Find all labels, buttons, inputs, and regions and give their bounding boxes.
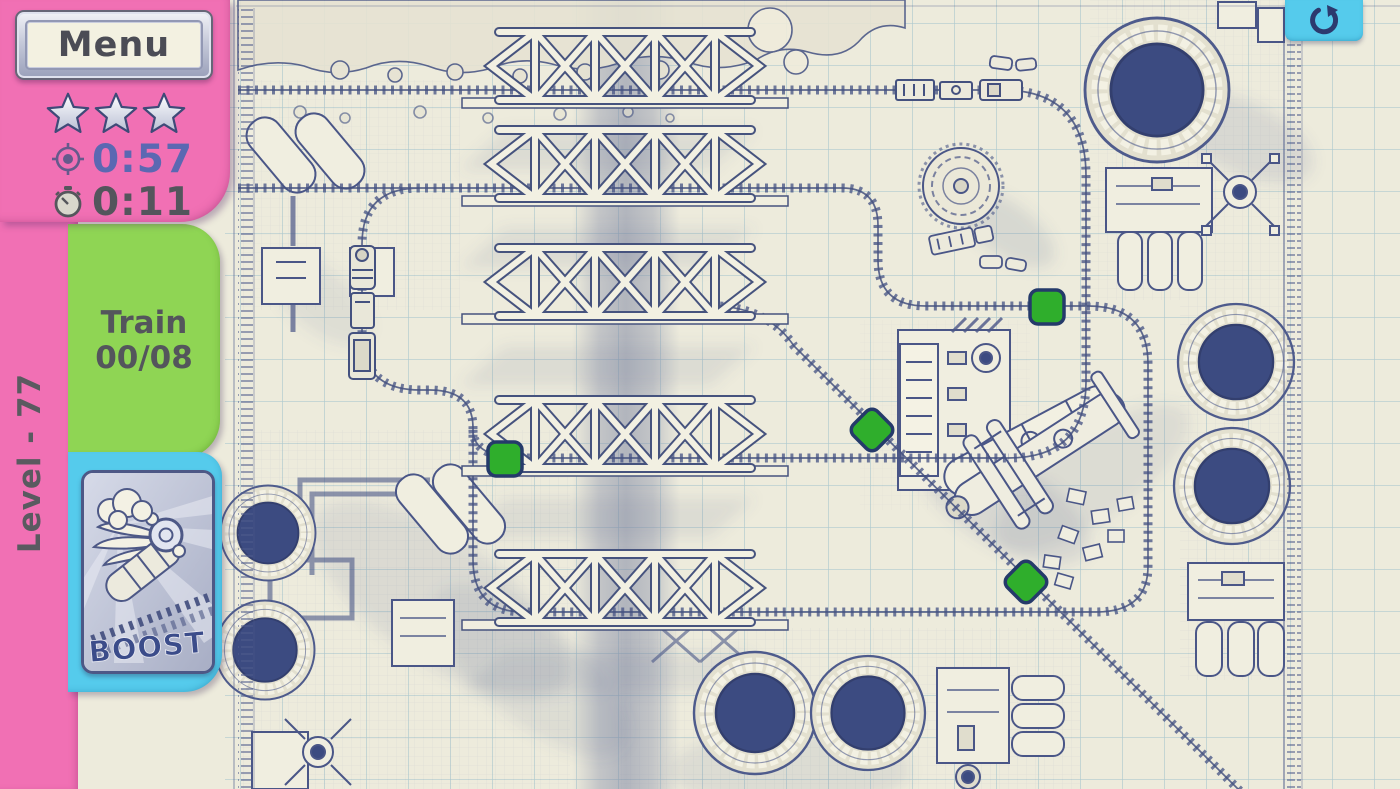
stars-rating [46,90,186,136]
parked-wagons [896,80,1022,100]
cooling-tower [216,601,315,700]
train-counter-tab: Train 00/08 [68,224,220,458]
train [349,246,375,379]
cooling-tower [811,656,925,770]
stopwatch-icon [52,185,84,219]
boost-card-art: BOOST [84,473,212,671]
cooling-tower [1174,428,1290,544]
star-icon [46,90,90,136]
car [989,56,1012,71]
cooling-tower [221,486,316,581]
cooling-tower [694,652,816,774]
train-count: 00/08 [95,341,193,376]
car [980,256,1002,268]
car [1016,58,1037,71]
switch-marker-square[interactable] [1030,290,1064,324]
level-label: Level - 77 [12,332,54,594]
refresh-icon [1307,4,1341,38]
best-time-value: 0:57 [92,140,193,179]
elapsed-time-row: 0:11 [52,181,193,223]
best-time-row: 0:57 [52,138,193,180]
boost-button[interactable]: BOOST [81,470,215,674]
game-screen: Level - 77 Train 00/08 [0,0,1400,789]
car [1005,257,1027,271]
switch-marker-square[interactable] [488,442,522,476]
restart-button[interactable] [1285,0,1363,41]
target-icon [52,143,84,175]
menu-button[interactable]: Menu [15,10,213,80]
elapsed-time-value: 0:11 [92,183,193,222]
cooling-tower [1178,304,1294,420]
menu-label: Menu [58,25,170,65]
boost-tab: BOOST [68,452,222,692]
star-icon [94,90,138,136]
train-word: Train [95,306,193,341]
cooling-tower [1085,18,1229,162]
star-icon [142,90,186,136]
hud-panel: Menu 0:57 [0,0,230,222]
works-right-lower [1188,563,1284,676]
